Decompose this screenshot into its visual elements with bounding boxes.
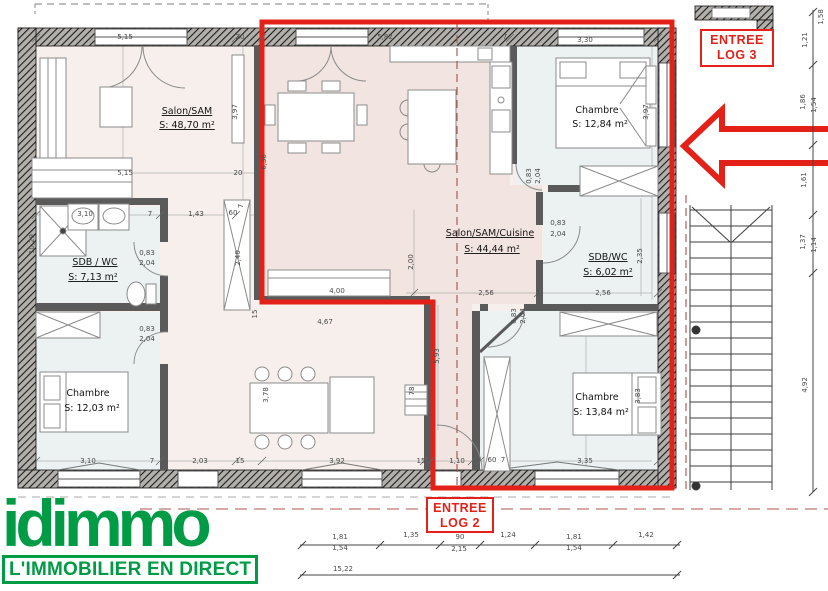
dimension-label: 1,61 [800,172,808,188]
room-name: Chambre [575,105,618,116]
dimension-label: 3,83 [634,388,642,404]
dimension-label: 3,10 [80,457,96,465]
dimension-label: 1,21 [801,32,809,48]
dimension-label: 4,00 [329,287,345,295]
entree-log3-line2: LOG 3 [702,48,772,63]
entree-log3-line1: ENTREE [702,33,772,48]
dimension-label: 60 [229,209,238,217]
dimension-label: 5,15 [117,33,133,41]
dimension-label: 4,92 [801,377,809,393]
dimension-label: 1,81 [566,533,582,541]
dimension-label: 3,78 [262,387,270,403]
agency-logo-tagline: L'IMMOBILIER EN DIRECT [2,555,258,584]
room-area: S: 44,44 m² [464,244,520,255]
dimension-label: 1,37 [799,234,807,250]
exterior-staircase [690,205,772,490]
dimension-label: 0,83 [139,249,155,257]
room-area: S: 12,03 m² [64,403,120,414]
dimension-label: 1,54 [810,97,818,113]
dimension-label: 2,56 [595,289,611,297]
dimension-label: 2,04 [519,308,527,324]
dimension-label: 20 [236,33,245,41]
room-name: Chambre [575,392,618,403]
dimension-label: 7 [501,456,505,464]
dimension-label: 10,29 [28,234,36,254]
dimension-label: 7 [237,204,245,208]
entree-log2-line1: ENTREE [428,501,492,516]
dimension-label: 3,10 [77,210,93,218]
room-area: S: 6,02 m² [583,267,633,278]
dimension-label: 2,04 [550,230,566,238]
dimension-label: 1,86 [799,94,807,110]
dimension-label: 7 [503,33,507,41]
room-name: Chambre [66,388,109,399]
dimension-label: 0,83 [510,308,518,324]
room-area: S: 13,84 m² [573,407,629,418]
dimension-label: 3,35 [577,457,593,465]
agency-logo-wordmark: idimmo [2,492,258,554]
dimension-label: 7 [536,289,540,297]
dimension-label: 1,54 [332,544,348,552]
dimension-label: 3,97 [231,104,239,120]
dimension-label: 1,43 [188,210,204,218]
floor-plan-sheet: Salon/SAMS: 48,70 m²ChambreS: 12,84 m²SD… [0,0,828,591]
dimension-label: 2,15 [451,545,467,553]
dimension-label: 1,81 [332,533,348,541]
dimension-label: 1,42 [638,531,654,539]
dimension-label: 3,92 [329,457,345,465]
dimension-label: 15 [236,457,245,465]
room-name: Salon/SAM/Cuisine [446,228,535,239]
dimension-label: 2,56 [478,289,494,297]
dimension-label: 5,15 [117,169,133,177]
entrance-arrow-icon [684,110,828,182]
dimension-label: 2,35 [636,248,644,264]
dimension-label: 15 [417,457,426,465]
dimension-label: 4,67 [317,318,333,326]
dimension-label: 2,00 [407,254,415,270]
dimension-label: 1,10 [449,457,465,465]
dimension-label: 0,83 [139,325,155,333]
room-name: Salon/SAM [162,106,212,117]
dimension-label: 2,04 [139,335,155,343]
dimension-label: 0,83 [550,219,566,227]
dimension-label: 15,22 [333,565,353,573]
dimension-label: 1,24 [500,531,516,539]
entree-log3-label: ENTREE LOG 3 [700,29,774,67]
room-area: S: 12,84 m² [572,119,628,130]
room-name: SDB / WC [72,257,117,268]
dimension-label: 2,04 [139,259,155,267]
dimension-label: 1,35 [403,531,419,539]
agency-logo: idimmo L'IMMOBILIER EN DIRECT [2,492,258,584]
room-area: S: 48,70 m² [159,120,215,131]
dimension-label: 7 [150,457,154,465]
dimension-label: 90 [456,533,465,541]
entree-log2-label: ENTREE LOG 2 [426,497,494,533]
dimension-label: 1,54 [566,544,582,552]
dimension-label: 15 [251,310,259,319]
entree-log2-line2: LOG 2 [428,516,492,531]
room-name: SDB/WC [588,252,627,263]
dimension-label: 1,58 [817,9,825,25]
dimension-label: 0,83 [525,168,533,184]
dimension-label: 2,03 [192,457,208,465]
dimension-label: 60 [488,456,497,464]
dimension-label: 78 [408,387,416,396]
dimension-label: 20 [234,169,243,177]
dimension-label: 3,30 [577,36,593,44]
dimension-label: 5,82 [377,33,393,41]
room-area: S: 7,13 m² [68,272,118,283]
dimension-label: 7 [148,210,152,218]
dimension-label: 6,36 [260,154,268,170]
dimension-label: 1,14 [810,237,818,253]
dimension-label: 2,04 [534,168,542,184]
dimension-label: 5,93 [433,348,441,364]
dimension-label: 3,97 [642,104,650,120]
dimension-label: 2,40 [234,250,242,266]
